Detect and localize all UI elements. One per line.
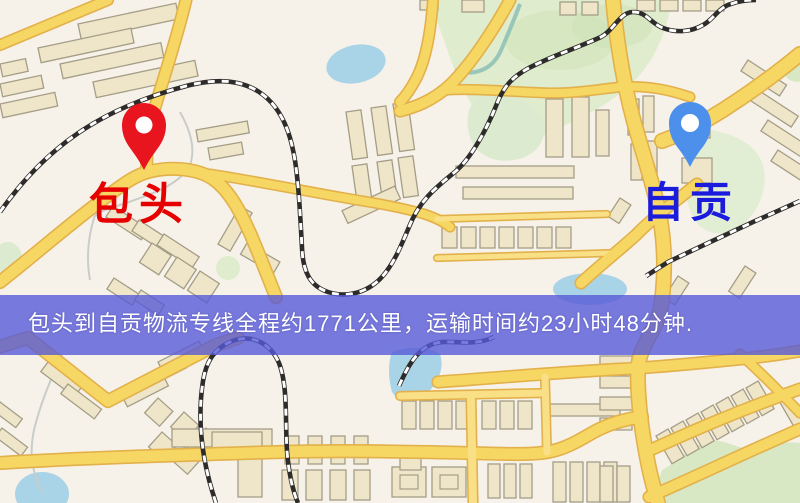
building-block [600,466,613,502]
route-info-text: 包头到自贡物流专线全程约1771公里，运输时间约23小时48分钟. [28,306,693,338]
building-block [499,227,514,248]
building-block [456,166,574,178]
building-block [660,0,678,11]
building-block [500,401,514,429]
building-block [462,0,484,12]
building-block [560,2,576,15]
map-image: 包头 自贡 包头到自贡物流专线全程约1771公里，运输时间约23小时48分钟. [0,0,800,503]
building-block [537,227,552,248]
building-block [354,470,370,500]
map-canvas: 包头 自贡 [0,0,800,503]
building-block [461,227,476,248]
building-block [438,401,452,429]
origin-label: 包头 [89,180,189,229]
building-block [518,401,532,429]
road [545,377,547,452]
building-block [504,464,516,498]
building-block [617,466,630,502]
building-block [546,99,563,157]
building-block [643,96,654,132]
building-block [572,97,589,157]
building-block [582,2,598,15]
building-block [463,187,573,199]
building-block [637,0,655,11]
building-block [600,376,632,388]
building-block [553,462,566,502]
destination-label: 自贡 [642,179,738,226]
building-block [402,401,416,429]
building-block [488,464,500,498]
building-block [683,0,701,11]
building-block [596,110,609,156]
building-block [520,464,532,498]
building-block [556,227,571,248]
building-block [482,401,496,429]
road [471,396,473,503]
building-block [420,401,434,429]
building-block [330,470,346,500]
building-block [432,467,466,497]
building-block [392,467,426,497]
building-block [480,227,495,248]
building-block [518,227,533,248]
building-block [570,462,583,502]
building-block [600,397,634,410]
building-block [587,462,600,502]
route-info-banner: 包头到自贡物流专线全程约1771公里，运输时间约23小时48分钟. [0,295,800,355]
building-block [306,470,322,500]
park-area [216,256,240,280]
